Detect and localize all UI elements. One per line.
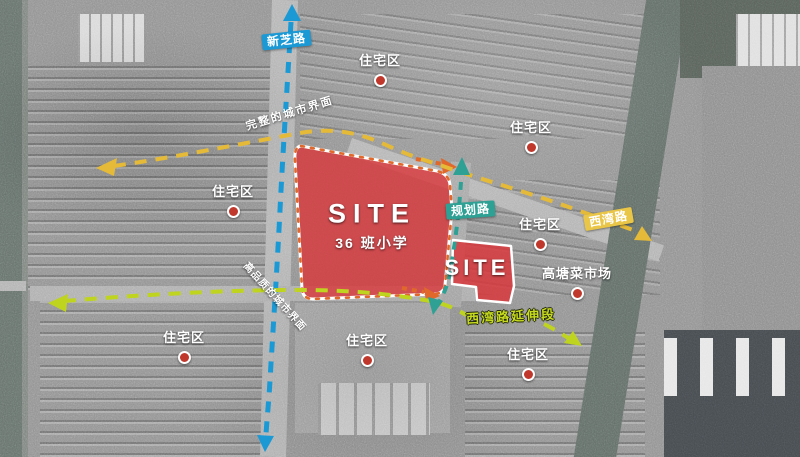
area-label: 住宅区: [346, 330, 388, 349]
location-dot: [360, 354, 373, 367]
location-dot: [570, 287, 583, 300]
location-dot: [177, 351, 190, 364]
location-dot: [226, 205, 239, 218]
area-label: 住宅区: [519, 214, 561, 233]
area-marker: 住宅区: [212, 181, 254, 218]
area-marker: 住宅区: [163, 327, 205, 364]
area-marker: 住宅区: [359, 50, 401, 87]
site-analysis-map: SITE 36 班小学 SITE 新芝路 规划路 西湾路 西湾路延伸段 完整的城…: [0, 0, 800, 457]
area-marker: 住宅区: [519, 214, 561, 251]
area-marker: 高塘菜市场: [542, 263, 612, 300]
area-marker: 住宅区: [346, 330, 388, 367]
markers-layer: 住宅区住宅区住宅区住宅区高塘菜市场住宅区住宅区住宅区: [0, 0, 800, 457]
location-dot: [373, 74, 386, 87]
area-label: 住宅区: [212, 181, 254, 200]
area-label: 高塘菜市场: [542, 263, 612, 282]
location-dot: [533, 238, 546, 251]
area-marker: 住宅区: [510, 117, 552, 154]
area-label: 住宅区: [507, 344, 549, 363]
area-label: 住宅区: [359, 50, 401, 69]
area-marker: 住宅区: [507, 344, 549, 381]
area-label: 住宅区: [510, 117, 552, 136]
location-dot: [524, 141, 537, 154]
location-dot: [521, 368, 534, 381]
area-label: 住宅区: [163, 327, 205, 346]
